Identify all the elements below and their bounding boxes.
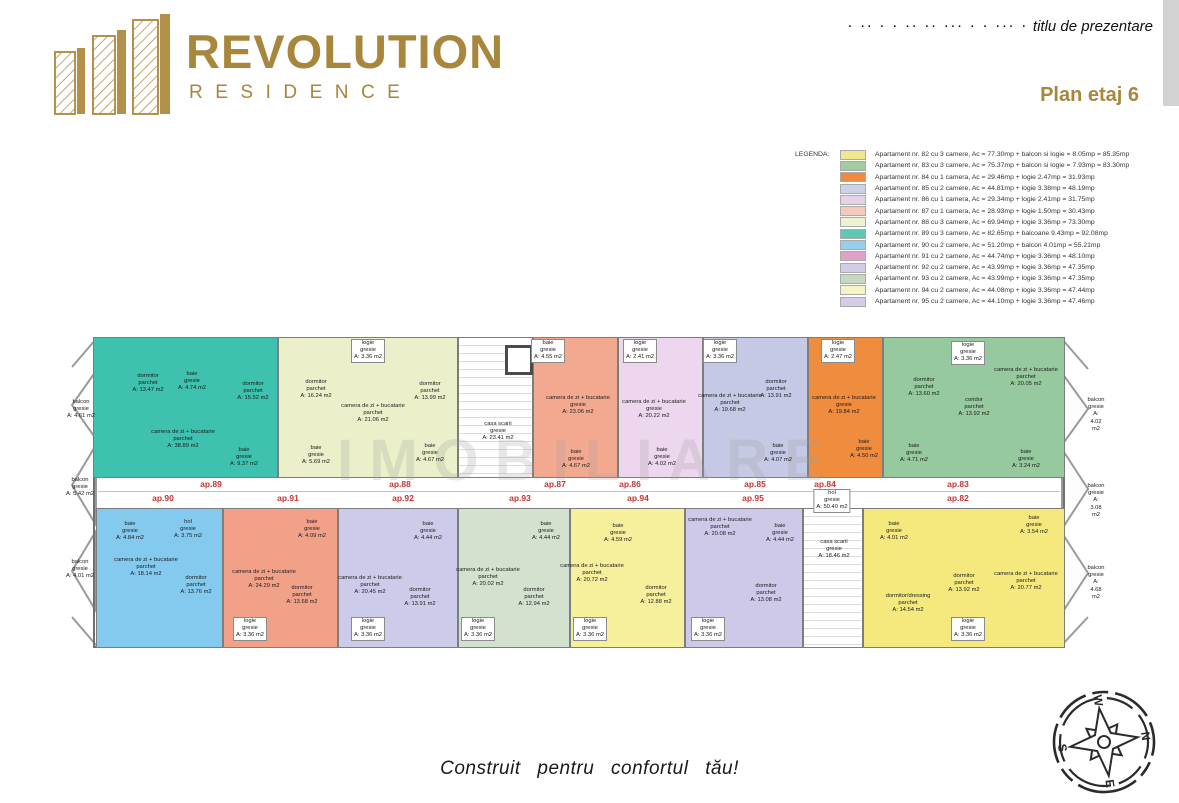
- room-label: dormitor parchet A: 13.08 m2: [750, 583, 781, 605]
- stairs-bottom: [803, 508, 863, 648]
- compass-e: E: [1102, 779, 1117, 789]
- apartment-number-label: ap.89: [200, 479, 222, 489]
- apartment-number-label: ap.94: [627, 493, 649, 503]
- legend-row-3: Apartament nr. 85 cu 2 camere, Ac = 44.8…: [840, 183, 1129, 194]
- room-label: dormitor parchet A: 13.68 m2: [286, 585, 317, 607]
- room-label: logie gresie A: 3.36 m2: [233, 617, 267, 641]
- legend-entry-text: Apartament nr. 87 cu 1 camera, Ac = 28.9…: [875, 208, 1095, 215]
- apartment-number-label: ap.93: [509, 493, 531, 503]
- room-label: logie gresie A: 3.36 m2: [951, 341, 985, 365]
- room-label: baie gresie A: 4.44 m2: [766, 523, 794, 545]
- legend-entry-text: Apartament nr. 91 cu 2 camere, Ac = 44.7…: [875, 253, 1095, 260]
- legend-row-5: Apartament nr. 87 cu 1 camera, Ac = 28.9…: [840, 205, 1129, 216]
- legend-row-11: Apartament nr. 93 cu 2 camere, Ac = 43.9…: [840, 273, 1129, 284]
- room-label: dormitor parchet A: 13.91 m2: [404, 587, 435, 609]
- legend-entry-text: Apartament nr. 89 cu 3 camere, Ac = 82.6…: [875, 230, 1108, 237]
- slogan: Construit pentru confortul tău!: [0, 758, 1179, 780]
- room-label: logie gresie A: 3.36 m2: [573, 617, 607, 641]
- legend-entry-text: Apartament nr. 82 cu 3 camere, Ac = 77.3…: [875, 151, 1129, 158]
- dash-marks: · ·· · · ·· ·· ··· · · ··· ·: [848, 21, 1029, 33]
- legend-swatch: [840, 206, 866, 216]
- room-label: camera de zi + bucatarie parchet A: 20.0…: [994, 367, 1058, 389]
- legend-swatch: [840, 217, 866, 227]
- room-label: camera de zi + bucatarie parchet A: 19.6…: [698, 393, 762, 415]
- room-label: dormitor parchet A: 13.92 m2: [948, 573, 979, 595]
- room-label: baie gresie A: 4.55 m2: [531, 339, 565, 363]
- legend-entry-text: Apartament nr. 92 cu 2 camere, Ac = 43.9…: [875, 264, 1095, 271]
- legend-swatch: [840, 184, 866, 194]
- legend-swatch: [840, 251, 866, 261]
- room-label: balcon gresie A: 4.02 m2: [1087, 397, 1104, 433]
- apartment-number-label: ap.88: [389, 479, 411, 489]
- legend-swatch: [840, 274, 866, 284]
- room-label: balcon gresie A: 4.01 m2: [66, 559, 94, 581]
- legend-label: LEGENDA:: [795, 151, 829, 158]
- legend-row-13: Apartament nr. 95 cu 2 camere, Ac = 44.1…: [840, 296, 1129, 307]
- room-label: dormitor parchet A: 13.47 m2: [132, 373, 163, 395]
- legend-swatch: [840, 297, 866, 307]
- elevator-shaft: [505, 345, 533, 375]
- room-label: dormitor parchet A: 15.52 m2: [237, 381, 268, 403]
- compass-s: S: [1055, 743, 1070, 753]
- room-label: camera de zi + bucatarie gresie A: 19.84…: [812, 395, 876, 417]
- room-label: baie gresie A: 4.44 m2: [532, 521, 560, 543]
- legend-swatch: [840, 195, 866, 205]
- page-title: Plan etaj 6: [1040, 84, 1139, 107]
- legend-entry-text: Apartament nr. 95 cu 2 camere, Ac = 44.1…: [875, 298, 1095, 305]
- legend-row-6: Apartament nr. 88 cu 3 camere, Ac = 69.9…: [840, 217, 1129, 228]
- legend-row-10: Apartament nr. 92 cu 2 camere, Ac = 43.9…: [840, 262, 1129, 273]
- room-label: baie gresie A: 3.24 m2: [1012, 449, 1040, 471]
- legend: LEGENDA: Apartament nr. 82 cu 3 camere, …: [795, 149, 1129, 307]
- presentation-title-placeholder: · ·· · · ·· ·· ··· · · ··· · titlu de pr…: [848, 18, 1153, 35]
- room-label: baie gresie A: 4.71 m2: [900, 443, 928, 465]
- legend-entry-text: Apartament nr. 94 cu 2 camere, Ac = 44.0…: [875, 287, 1095, 294]
- room-label: dormitor parchet A: 13.99 m2: [414, 381, 445, 403]
- room-label: baie gresie A: 4.84 m2: [116, 521, 144, 543]
- legend-row-1: Apartament nr. 83 cu 3 camere, Ac = 75.3…: [840, 160, 1129, 171]
- apartment-number-label: ap.91: [277, 493, 299, 503]
- brand-name: REVOLUTION: [186, 28, 504, 75]
- room-label: camera de zi + bucatarie parchet A: 20.7…: [994, 571, 1058, 593]
- room-label: dormitor parchet A: 13.76 m2: [180, 575, 211, 597]
- legend-entry-text: Apartament nr. 90 cu 2 camere, Ac = 51.2…: [875, 242, 1100, 249]
- compass-n: N: [1138, 731, 1153, 742]
- room-label: dormitor parchet A: 13.91 m2: [760, 379, 791, 401]
- apartment-number-label: ap.95: [742, 493, 764, 503]
- room-label: camera de zi + bucatarie gresie A: 20.22…: [622, 399, 686, 421]
- room-label: camera de zi + bucatarie parchet A: 38.8…: [151, 429, 215, 451]
- room-label: baie gresie A: 4.07 m2: [764, 443, 792, 465]
- brand-logo: REVOLUTION RESIDENCE: [52, 12, 504, 116]
- room-label: logie gresie A: 3.36 m2: [703, 339, 737, 363]
- room-label: camera de zi + bucatarie parchet A: 20.0…: [688, 517, 752, 539]
- buildings-logo-icon: [52, 12, 172, 116]
- legend-swatch: [840, 263, 866, 273]
- room-label: balcon gresie A: 5.42 m2: [66, 477, 94, 499]
- apartment-number-label: ap.82: [947, 493, 969, 503]
- apartment-number-label: ap.86: [619, 479, 641, 489]
- room-label: baie gresie A: 4.09 m2: [298, 519, 326, 541]
- room-label: balcon gresie A: 3.08 m2: [1087, 483, 1104, 519]
- legend-entry-text: Apartament nr. 93 cu 2 camere, Ac = 43.9…: [875, 275, 1095, 282]
- apartment-number-label: ap.90: [152, 493, 174, 503]
- legend-swatch: [840, 161, 866, 171]
- room-label: baie gresie A: 4.67 m2: [416, 443, 444, 465]
- room-label: logie gresie A: 3.36 m2: [461, 617, 495, 641]
- room-label: baie gresie A: 4.50 m2: [850, 439, 878, 461]
- room-label: dormitor parchet A: 13.60 m2: [908, 377, 939, 399]
- room-label: logie gresie A: 3.36 m2: [691, 617, 725, 641]
- room-label: baie gresie A: 9.37 m2: [230, 447, 258, 469]
- room-label: baie gresie A: 4.74 m2: [178, 371, 206, 393]
- room-label: casa scarii gresie A: 18.46 m2: [818, 539, 849, 561]
- room-label: hol gresie A: 50.40 m2: [813, 489, 850, 513]
- room-label: camera de zi + bucatarie parchet A: 21.0…: [341, 403, 405, 425]
- apartment-number-label: ap.87: [544, 479, 566, 489]
- legend-entry-text: Apartament nr. 84 cu 1 camera, Ac = 29.4…: [875, 174, 1095, 181]
- room-label: camera de zi + bucatarie gresie A: 23.06…: [546, 395, 610, 417]
- compass-w: W: [1090, 694, 1106, 708]
- room-label: camera de zi + bucatarie parchet A: 20.4…: [338, 575, 402, 597]
- legend-entry-text: Apartament nr. 85 cu 2 camere, Ac = 44.8…: [875, 185, 1095, 192]
- legend-swatch: [840, 150, 866, 160]
- legend-entry-text: Apartament nr. 86 cu 1 camera, Ac = 29.3…: [875, 196, 1095, 203]
- room-label: camera de zi + bucatarie parchet A: 18.1…: [114, 557, 178, 579]
- floor-plan: IMOBILIARE dormitor parchet A: 13.47 m2b…: [68, 337, 1110, 648]
- room-label: camera de zi + bucatarie parchet A: 20.0…: [456, 567, 520, 589]
- room-label: hol gresie A: 3.75 m2: [174, 519, 202, 541]
- compass-icon: N E S W: [1048, 686, 1160, 803]
- apartment-number-label: ap.83: [947, 479, 969, 489]
- room-label: baie gresie A: 4.44 m2: [414, 521, 442, 543]
- room-label: baie gresie A: 4.01 m2: [880, 521, 908, 543]
- room-label: dormitor parchet A: 12.94 m2: [518, 587, 549, 609]
- apartment-number-label: ap.85: [744, 479, 766, 489]
- legend-row-4: Apartament nr. 86 cu 1 camera, Ac = 29.3…: [840, 194, 1129, 205]
- room-label: dormitor/dressing parchet A: 14.54 m2: [886, 593, 931, 615]
- room-label: baie gresie A: 3.54 m2: [1020, 515, 1048, 537]
- room-label: balcon gresie A: 4.68 m2: [1087, 565, 1104, 601]
- legend-swatch: [840, 172, 866, 182]
- room-label: casa scarii gresie A: 23.41 m2: [482, 421, 513, 443]
- room-label: logie gresie A: 3.36 m2: [951, 617, 985, 641]
- room-label: baie gresie A: 4.59 m2: [604, 523, 632, 545]
- legend-swatch: [840, 229, 866, 239]
- room-label: logie gresie A: 3.36 m2: [351, 339, 385, 363]
- room-label: logie gresie A: 2.47 m2: [821, 339, 855, 363]
- legend-row-8: Apartament nr. 90 cu 2 camere, Ac = 51.2…: [840, 239, 1129, 250]
- legend-row-0: Apartament nr. 82 cu 3 camere, Ac = 77.3…: [840, 149, 1129, 160]
- legend-items: Apartament nr. 82 cu 3 camere, Ac = 77.3…: [840, 149, 1129, 307]
- apartment-number-label: ap.92: [392, 493, 414, 503]
- legend-row-7: Apartament nr. 89 cu 3 camere, Ac = 82.6…: [840, 228, 1129, 239]
- room-label: baie gresie A: 4.02 m2: [648, 447, 676, 469]
- room-label: camera de zi + bucatarie parchet A: 20.7…: [560, 563, 624, 585]
- room-label: dormitor parchet A: 12.88 m2: [640, 585, 671, 607]
- page-edge-strip: [1163, 0, 1179, 106]
- legend-entry-text: Apartament nr. 88 cu 3 camere, Ac = 69.9…: [875, 219, 1095, 226]
- room-label: logie gresie A: 2.41 m2: [623, 339, 657, 363]
- room-label: baie gresie A: 5.69 m2: [302, 445, 330, 467]
- legend-row-2: Apartament nr. 84 cu 1 camera, Ac = 29.4…: [840, 172, 1129, 183]
- legend-swatch: [840, 285, 866, 295]
- room-label: baie gresie A: 4.67 m2: [562, 449, 590, 471]
- room-label: dormitor parchet A: 16.24 m2: [300, 379, 331, 401]
- legend-entry-text: Apartament nr. 83 cu 3 camere, Ac = 75.3…: [875, 162, 1129, 169]
- room-label: balcon gresie A: 4.61 m2: [67, 399, 95, 421]
- apartment-number-label: ap.84: [814, 479, 836, 489]
- legend-swatch: [840, 240, 866, 250]
- room-label: logie gresie A: 3.36 m2: [351, 617, 385, 641]
- placeholder-title-text: titlu de prezentare: [1033, 18, 1153, 35]
- brand-subtitle: RESIDENCE: [189, 82, 504, 104]
- legend-row-9: Apartament nr. 91 cu 2 camere, Ac = 44.7…: [840, 251, 1129, 262]
- legend-row-12: Apartament nr. 94 cu 2 camere, Ac = 44.0…: [840, 285, 1129, 296]
- room-label: coridor parchet A: 13.92 m2: [958, 397, 989, 419]
